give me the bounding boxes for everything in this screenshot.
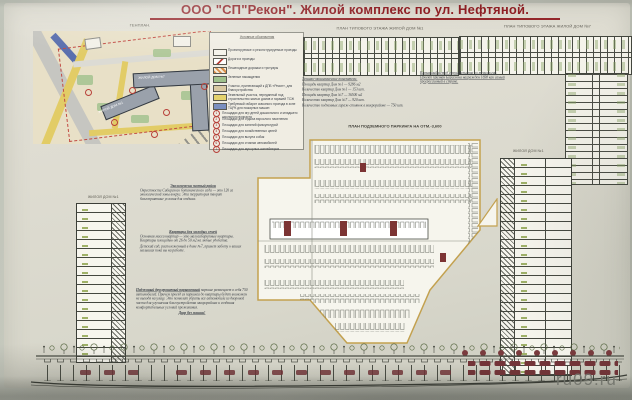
- note-parking: Подземный двухуровневый парковочный парк…: [136, 288, 248, 349]
- legend-numbered-label: Площадки для занятий физкультурой: [222, 123, 300, 127]
- swatch-fire-lane: [213, 103, 227, 110]
- note-eco-body: Окрестности Сибирского ботанического сад…: [140, 188, 246, 201]
- legend-swatch-label: Проектируемые и реконструируемые проезды: [228, 48, 302, 52]
- swatch-greenery: [213, 76, 227, 83]
- map-placemark: [111, 119, 118, 126]
- note-flats-body: Основная масса квартир — это малогабарит…: [140, 234, 246, 243]
- plan7-label: ПЛАН ТИПОВОГО ЭТАЖА ЖИЛОЙ ДОМ №7: [470, 24, 625, 29]
- legend-title: Условные обозначения: [211, 35, 303, 39]
- legend-swatch-label: Требуемый габарит сквозного проезда в зо…: [228, 102, 302, 110]
- swatch-projected-drives: [213, 49, 227, 56]
- genplan-map: ЖИЛОЙ ДОМ №1 ЖИЛОЙ ДОМ №7: [33, 31, 226, 144]
- map-placemark: [163, 109, 170, 116]
- legend-row: Зеленые насаждения: [210, 74, 303, 83]
- banner-photo: ООО "СП"Рекон". Жилой комплекс по ул. Не…: [0, 0, 632, 400]
- map-placemark: [201, 83, 208, 90]
- section-cars-middle: [168, 366, 458, 375]
- tep-line: Количество подземных гараж-стоянок в мик…: [302, 103, 420, 107]
- tep-line: Площадь квартир Дом №7 — 36500 м2: [302, 93, 420, 97]
- tep-line: Количество квартир Дом №7 — 920 шт.: [302, 98, 420, 102]
- genplan-label: ГЕНПЛАН.: [110, 23, 170, 28]
- swatch-adjacent-plot: [213, 85, 227, 92]
- legend-swatch-label: Участок, прилегающий к ДПБ «Рекон», для …: [228, 84, 302, 92]
- legend-numbered-label: Площадки для отдыха взрослого населения: [222, 117, 300, 121]
- note-right: Каркасный метод строительства по техноло…: [420, 71, 508, 107]
- plan1-label: ПЛАН ТИПОВОГО ЭТАЖА ЖИЛОЙ ДОМ №1: [303, 26, 457, 31]
- poster-title: ООО "СП"Рекон". Жилой комплекс по ул. Не…: [150, 2, 560, 20]
- floor-plan-dom7-vertical: [565, 73, 628, 185]
- note-right-text: Каркасный метод строительства по техноло…: [420, 71, 508, 84]
- tower-right-label: ЖИЛОЙ ДОМ №1: [508, 149, 549, 153]
- swatch-land-plot: [213, 94, 227, 101]
- legend-swatch-label: Пешеходные дорожки и тротуары: [228, 66, 302, 70]
- swatch-roads: [213, 58, 227, 65]
- legend-numbered-label: Площадки для хозяйственных целей: [222, 129, 300, 133]
- section-cars-left: [68, 367, 138, 376]
- legend-swatch-label: Зеленые насаждения: [228, 75, 302, 79]
- note-kindergarten: Детский сад, расположенный в доме №7, пр…: [140, 244, 246, 253]
- legend-row: Участок, прилегающий к ДПБ «Рекон», для …: [210, 83, 303, 92]
- map-placemark: [129, 87, 136, 94]
- tower-left-stairs: [111, 204, 125, 362]
- site-cross-section: [28, 341, 630, 391]
- note-parking-slogan: Двор без машин!: [136, 311, 248, 315]
- floor-plan-dom7-horizontal: [459, 36, 632, 75]
- tep-title: Технико-экономические показатели:: [302, 77, 420, 81]
- legend-row: Пешеходные дорожки и тротуары: [210, 65, 303, 74]
- swatch-footpaths: [213, 67, 227, 74]
- legend-row: Требуемый габарит сквозного проезда в зо…: [210, 101, 303, 110]
- tower-left-section: [76, 203, 126, 363]
- map-small-building: [173, 36, 191, 47]
- placemark-number: 7: [213, 146, 220, 153]
- tep-block: Технико-экономические показатели: Площад…: [302, 77, 422, 127]
- map-small-building: [84, 37, 101, 50]
- note-eco: Экологически чистый район Окрестности Си…: [140, 184, 246, 222]
- watermark: ru09.ru: [556, 370, 617, 390]
- tep-line: Количество квартир Дом №1 — 153 шт.: [302, 87, 420, 91]
- map-placemark: [85, 89, 92, 96]
- legend-row: Земельный участок, переданный под строит…: [210, 92, 303, 101]
- parking-plan-label: ПЛАН ПОДЗЕМНОГО ПАРКИНГА НА ОТМ.-3,600: [315, 124, 475, 129]
- site-wedge: [477, 198, 499, 228]
- legend-swatch-label: Дороги и проезды: [228, 57, 302, 61]
- map-placemark: [151, 131, 158, 138]
- legend-row: Дороги и проезды: [210, 56, 303, 65]
- tower-left-label: ЖИЛОЙ ДОМ №1: [83, 195, 124, 199]
- section-cars-upper: [468, 360, 618, 368]
- legend-swatch-label: Земельный участок, переданный под строит…: [228, 93, 302, 101]
- legend-row: Проектируемые и реконструируемые проезды: [210, 47, 303, 56]
- tower-left-balconies: [82, 206, 88, 360]
- tep-line: Площадь квартир Дом №1 — 9286 м2: [302, 82, 420, 86]
- underground-parking-plan: [240, 133, 485, 345]
- section-shrubs: [458, 348, 618, 356]
- note-flats: Квартиры для молодых семей Основная масс…: [140, 230, 246, 281]
- map-building-7-label: ЖИЛОЙ ДОМ №7: [134, 74, 169, 80]
